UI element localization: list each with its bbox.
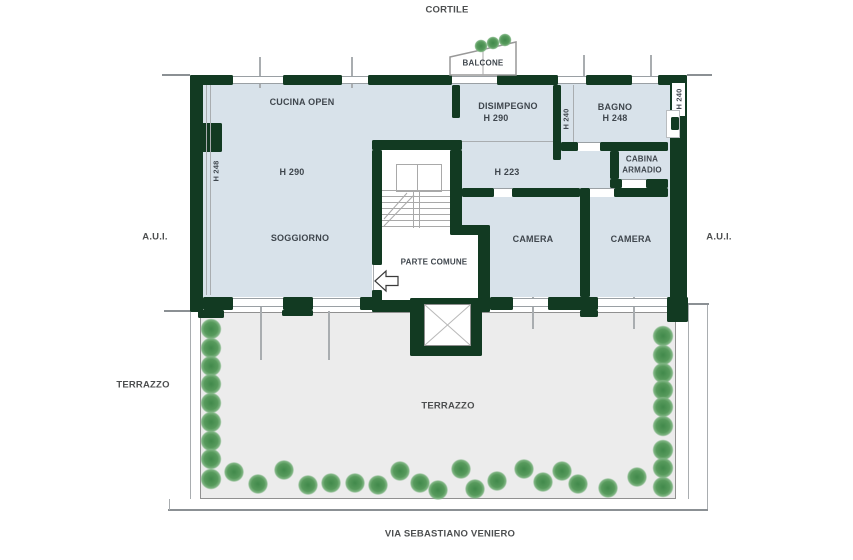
label-bagno: BAGNO: [598, 102, 633, 112]
label-h223: H 223: [494, 167, 519, 177]
terrace-outer-line-left: [190, 312, 191, 499]
tree-icon: [514, 459, 534, 479]
door-closet: [622, 179, 646, 188]
window: [233, 298, 283, 307]
tree-icon: [653, 458, 674, 479]
wall-segment: [490, 297, 513, 310]
wall-bath-bottom: [600, 142, 668, 151]
door-entry-line: [373, 265, 374, 290]
wall-bath-left: [553, 85, 561, 160]
label-aui-right: A.U.I.: [706, 232, 731, 243]
stair-tread: [382, 196, 450, 197]
label-camera-2: CAMERA: [611, 234, 652, 244]
wall-niche-tab: [671, 117, 679, 130]
wall-bath-bottom: [561, 142, 578, 151]
boundary-tick-top-right: [687, 74, 712, 76]
wall-segment: [283, 75, 342, 85]
door-bath: [578, 142, 600, 151]
tree-icon: [499, 34, 512, 47]
window: [598, 298, 667, 307]
stair-tread: [382, 202, 450, 203]
boundary-tick-top-left: [162, 74, 190, 76]
lot-line-right: [707, 304, 708, 510]
wall-segment: [368, 75, 452, 85]
label-cortile: CORTILE: [425, 5, 468, 16]
tree-icon: [201, 319, 222, 340]
wall-foot: [198, 310, 224, 318]
window-mullion-tick: [328, 311, 330, 360]
label-disimpegno-h: H 290: [483, 113, 508, 123]
tree-icon: [465, 479, 485, 499]
ceiling-line: [573, 85, 574, 142]
wall-bedroom2-top: [614, 188, 668, 197]
tree-icon: [428, 480, 448, 500]
wall-segment: [203, 297, 233, 310]
tree-icon: [410, 473, 430, 493]
tree-icon: [568, 474, 588, 494]
label-balcone: BALCONE: [463, 59, 504, 68]
stair-landing-divider: [417, 164, 418, 190]
label-street: VIA SEBASTIANO VENIERO: [385, 529, 515, 540]
label-h248-left: H 248: [212, 160, 221, 181]
tree-icon: [368, 475, 388, 495]
wall-corridor: [462, 188, 494, 197]
wall-foot: [580, 310, 598, 317]
wall-stub-kitchen: [452, 85, 460, 118]
label-terrazzo-center: TERRAZZO: [421, 401, 474, 412]
stair-stringer: [413, 190, 414, 228]
stair-tread: [382, 208, 450, 209]
ceiling-line: [210, 85, 211, 295]
tree-icon: [653, 416, 674, 437]
stair-tread: [382, 226, 450, 227]
label-disimpegno: DISIMPEGNO: [478, 101, 538, 111]
stair-stringer: [419, 190, 420, 228]
window: [233, 76, 283, 84]
stair-tread: [382, 220, 450, 221]
balcony-door: [452, 76, 497, 84]
tree-icon: [653, 326, 674, 347]
tree-icon: [248, 474, 268, 494]
tree-icon: [451, 459, 471, 479]
tree-icon: [201, 469, 222, 490]
tree-icon: [321, 473, 341, 493]
tree-icon: [201, 374, 222, 395]
wall-closet-bottom: [610, 179, 622, 188]
window: [342, 76, 368, 84]
label-cabina-1: CABINA: [626, 155, 658, 164]
stair-tread: [382, 214, 450, 215]
boundary-tick-bottom-left: [164, 310, 192, 312]
tree-icon: [274, 460, 294, 480]
terrace-outer-line-right: [688, 304, 689, 499]
stair-tread: [382, 190, 450, 191]
label-terrazzo-left: TERRAZZO: [116, 380, 169, 391]
label-camera-1: CAMERA: [513, 234, 554, 244]
floor-plan: CORTILE BALCONE CUCINA OPEN DISIMPEGNO H…: [0, 0, 853, 560]
common-area-floor: [382, 150, 450, 235]
terrace-door: [313, 298, 360, 307]
label-aui-left: A.U.I.: [142, 232, 167, 243]
stair-landing: [396, 164, 442, 192]
window: [513, 298, 548, 307]
boundary-tick-bottom-right: [687, 303, 709, 305]
tree-icon: [201, 393, 222, 414]
window-mullion-tick: [260, 305, 262, 360]
wall-common-left: [372, 150, 382, 265]
elevator-cab: [424, 304, 471, 346]
label-h240-right: H 240: [675, 88, 684, 109]
wall-closet-bottom: [646, 179, 668, 188]
tree-icon: [224, 462, 244, 482]
window: [632, 76, 658, 84]
wall-segment: [190, 75, 203, 312]
wall-stair-right: [450, 150, 462, 228]
tree-icon: [201, 449, 222, 470]
wall-segment: [548, 297, 598, 310]
wall-corridor: [512, 188, 580, 197]
wall-segment: [497, 75, 558, 85]
label-cabina-2: ARMADIO: [622, 166, 662, 175]
wall-stair-top: [372, 140, 462, 150]
wall-segment: [283, 297, 313, 310]
tree-icon: [653, 477, 674, 498]
wall-segment: [586, 75, 632, 85]
label-cucina: CUCINA OPEN: [270, 97, 335, 107]
tree-icon: [627, 467, 647, 487]
label-parte-comune: PARTE COMUNE: [401, 258, 468, 267]
label-h240-mid: H 240: [562, 108, 571, 129]
tree-icon: [345, 473, 365, 493]
label-bagno-h: H 248: [602, 113, 627, 123]
ceiling-line: [206, 85, 207, 295]
tree-icon: [653, 397, 674, 418]
lot-line-left-connector: [169, 499, 170, 510]
door-bedroom2: [590, 188, 614, 197]
wall-corner-foot: [667, 297, 688, 322]
door-bedroom1: [494, 188, 512, 197]
tree-icon: [598, 478, 618, 498]
label-soggiorno: SOGGIORNO: [271, 233, 329, 243]
street-line: [168, 509, 708, 511]
wall-closet-left: [610, 151, 619, 179]
wall-bedroom-divider: [580, 188, 590, 297]
window: [558, 76, 586, 84]
wall-foot: [282, 310, 313, 316]
label-soggiorno-h: H 290: [279, 167, 304, 177]
tree-icon: [390, 461, 410, 481]
tree-icon: [533, 472, 553, 492]
tree-icon: [298, 475, 318, 495]
tree-icon: [201, 412, 222, 433]
ceiling-line: [462, 141, 553, 142]
tree-icon: [487, 471, 507, 491]
